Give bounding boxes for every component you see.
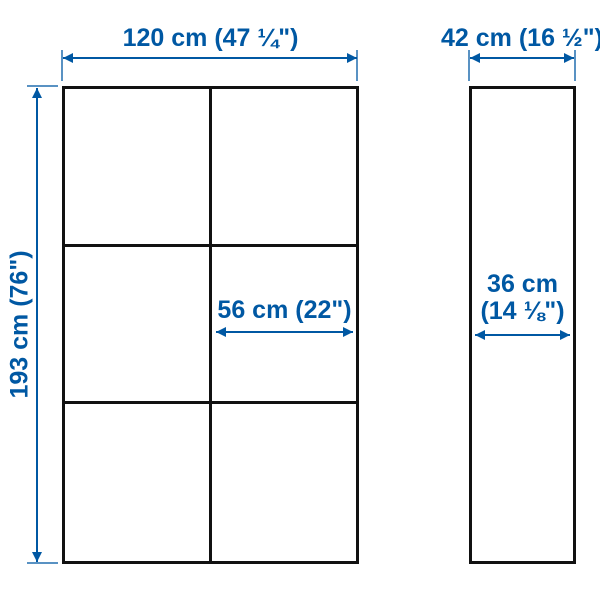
side-depth-label-line2: (14 ⅛") (469, 298, 576, 325)
side-width-label: 42 cm (16 ½") (437, 25, 600, 52)
front-width-label: 120 cm (47 ¼") (62, 25, 359, 52)
front-vertical-divider (209, 89, 212, 561)
front-horizontal-divider-2 (65, 401, 356, 404)
front-width-arrow (63, 57, 357, 59)
front-view-outline (62, 86, 359, 564)
front-height-arrow (36, 88, 38, 562)
front-horizontal-divider-1 (65, 244, 356, 247)
front-height-label: 193 cm (76") (7, 175, 34, 475)
front-width-tick-left (61, 50, 63, 81)
side-width-tick-right (574, 50, 576, 81)
side-depth-arrow (475, 334, 570, 336)
side-depth-label: 36 cm (14 ⅛") (469, 271, 576, 325)
shelf-width-arrow (216, 331, 353, 333)
front-height-tick-top (27, 85, 58, 87)
side-depth-label-line1: 36 cm (469, 271, 576, 298)
furniture-dimension-diagram: 120 cm (47 ¼") 42 cm (16 ½") 193 cm (76"… (0, 0, 600, 600)
front-height-tick-bottom (27, 562, 58, 564)
front-width-tick-right (356, 50, 358, 81)
side-width-tick-left (468, 50, 470, 81)
side-view-outline (469, 86, 576, 564)
shelf-width-label: 56 cm (22") (211, 297, 358, 324)
side-width-arrow (470, 57, 574, 59)
